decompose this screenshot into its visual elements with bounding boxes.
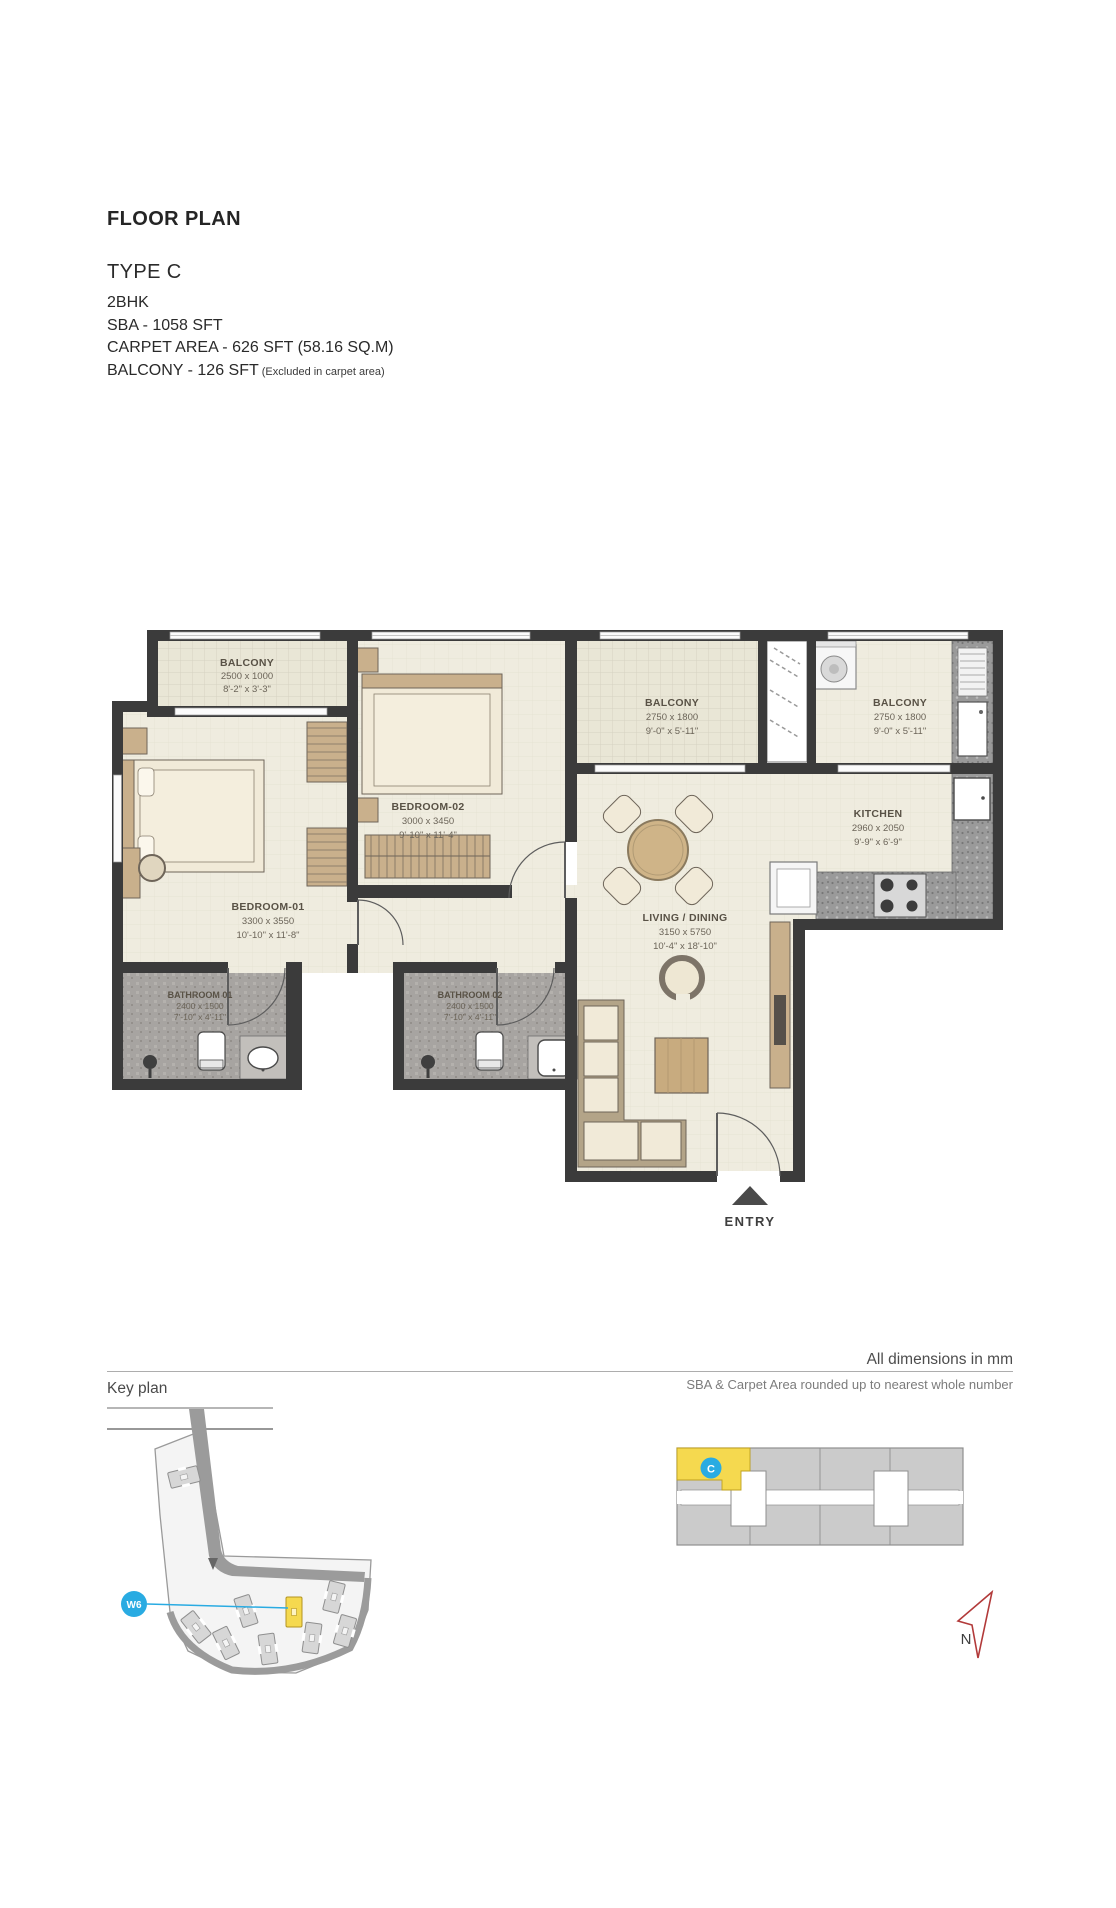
entry-arrow-icon [732,1186,768,1205]
marker-label: W6 [127,1600,142,1611]
floor-plan-drawing: BALCONY2500 x 10008'-2" x 3'-3" BEDROOM-… [112,628,1003,1232]
page-title: FLOOR PLAN [107,208,241,231]
north-label: N [961,1631,972,1648]
room-label: BEDROOM-013300 x 355010'-10" x 11'-8" [231,901,304,941]
spec-balcony-note: (Excluded in carpet area) [262,366,385,378]
room-label: BALCONY2750 x 18009'-0" x 5'-11" [873,697,927,737]
corridor [681,1490,959,1505]
washing-machine [812,641,856,689]
footer-divider [107,1371,1013,1372]
key-plan-title: Key plan [107,1380,167,1398]
spec-config: 2BHK [107,292,394,315]
entry-label: ENTRY [724,1214,775,1229]
site-key-plan: W6 [100,1400,400,1700]
room-label: BATHROOM 012400 x 15007'-10" x 4'-11" [168,990,233,1022]
tv-console [770,922,790,1088]
north-arrow-icon: N [958,1592,992,1658]
spec-balcony-value: BALCONY - 126 SFT [107,362,259,379]
spec-list: 2BHK SBA - 1058 SFT CARPET AREA - 626 SF… [107,292,394,383]
coffee-table [655,1038,708,1093]
room-label: BALCONY2500 x 10008'-2" x 3'-3" [220,657,274,695]
spec-balcony: BALCONY - 126 SFT(Excluded in carpet are… [107,360,394,384]
room-label: BEDROOM-023000 x 34509'-10" x 11'-4" [391,801,464,841]
entry-marker: ENTRY [724,1186,775,1229]
spec-sba: SBA - 1058 SFT [107,315,394,338]
dimensions-note: All dimensions in mm [867,1351,1013,1369]
room-label: BATHROOM 022400 x 15007'-10" x 4'-11" [438,990,503,1022]
room-label: BALCONY2750 x 18009'-0" x 5'-11" [645,697,699,737]
rounding-note: SBA & Carpet Area rounded up to nearest … [686,1377,1013,1392]
core-block [874,1471,908,1526]
tower-strip: C [677,1448,963,1545]
highlighted-tower [286,1597,302,1627]
utility-sink [958,648,987,756]
room-label: KITCHEN2960 x 20509'-9" x 6'-9" [852,808,904,848]
tower-key-plan: C N [655,1435,1015,1670]
spec-carpet: CARPET AREA - 626 SFT (58.16 SQ.M) [107,337,394,360]
armchair [662,958,702,1002]
type-title: TYPE C [107,261,182,284]
duct-shaft [767,641,807,762]
wardrobe-bedroom-02 [365,835,490,878]
unit-label: C [707,1464,715,1476]
floor-plan-page: FLOOR PLAN TYPE C 2BHK SBA - 1058 SFT CA… [0,0,1116,1908]
